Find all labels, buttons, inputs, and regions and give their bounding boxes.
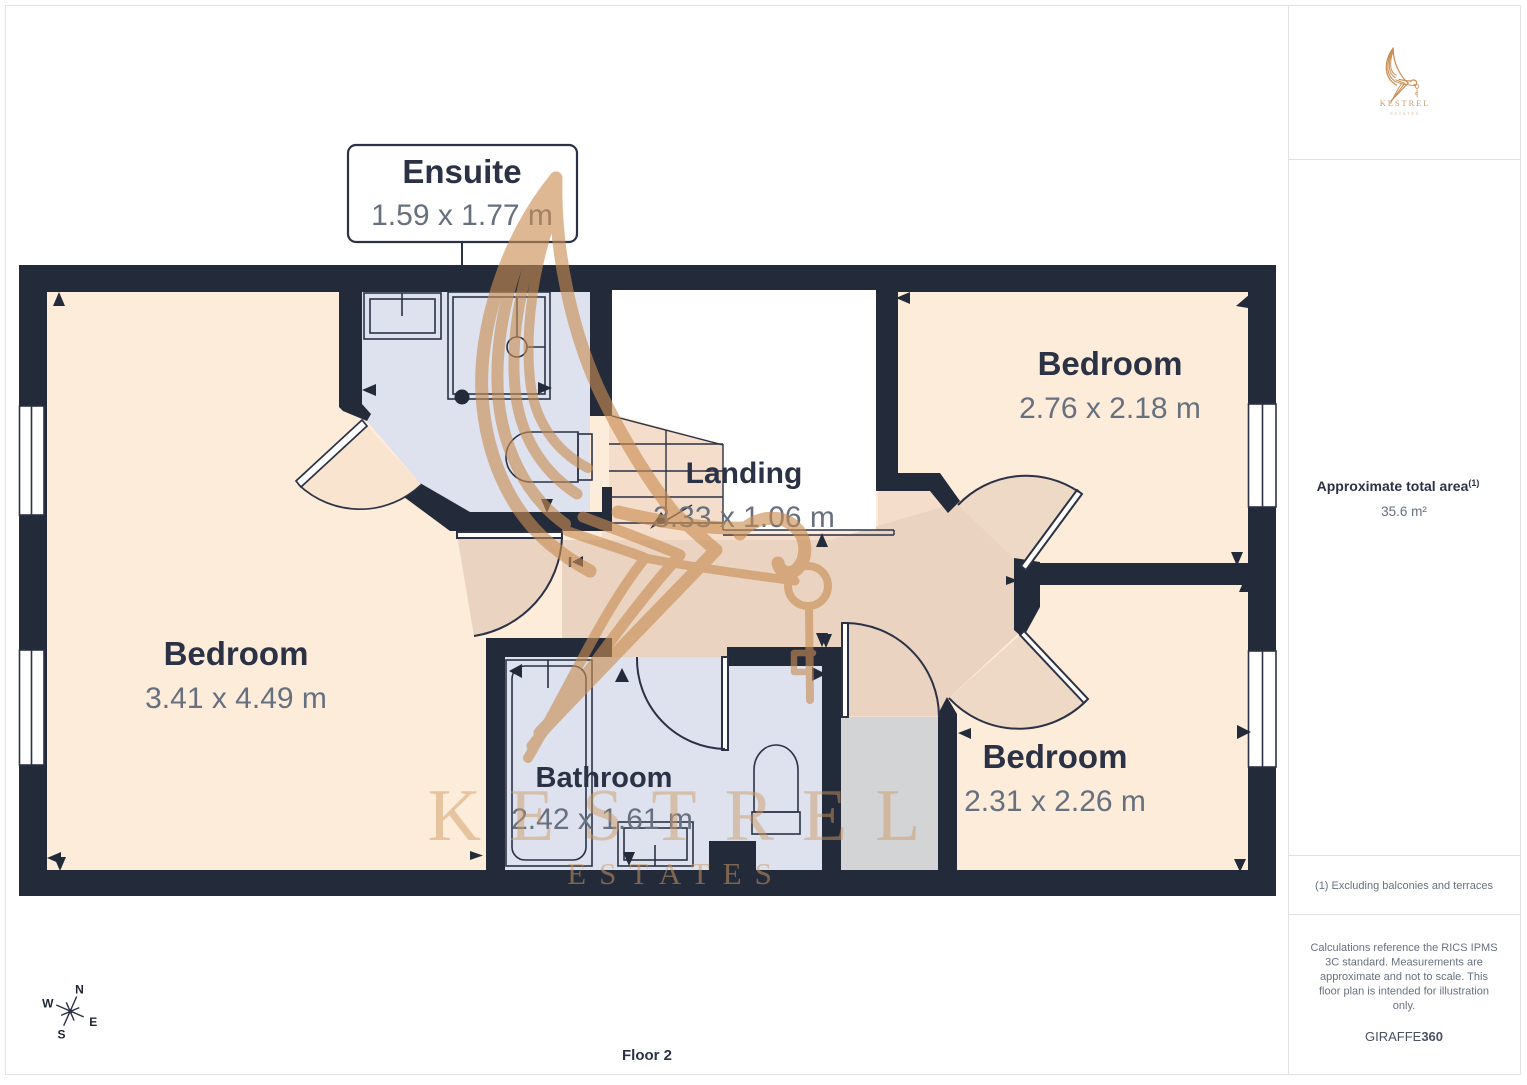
svg-text:Floor 2: Floor 2 [622,1047,672,1064]
svg-text:N: N [75,983,84,997]
svg-text:Ensuite: Ensuite [402,153,521,190]
svg-text:E: E [89,1015,97,1029]
svg-text:KESTREL: KESTREL [428,775,949,857]
svg-text:Calculations reference the RIC: Calculations reference the RICS IPMS [1310,942,1497,954]
svg-text:ESTATES: ESTATES [1390,111,1420,116]
svg-text:3.41 x 4.49 m: 3.41 x 4.49 m [145,682,327,715]
svg-text:approximate and not to scale.: approximate and not to scale. This [1320,971,1488,983]
svg-text:S: S [57,1028,65,1042]
svg-text:3C standard. Measurements are: 3C standard. Measurements are [1325,957,1483,969]
svg-text:(1) Excluding balconies and te: (1) Excluding balconies and terraces [1315,880,1493,892]
svg-text:2.76 x 2.18 m: 2.76 x 2.18 m [1019,392,1201,425]
svg-text:Landing: Landing [686,457,803,490]
svg-text:35.6 m²: 35.6 m² [1381,504,1427,519]
svg-text:Bedroom: Bedroom [164,635,309,672]
svg-text:ESTATES: ESTATES [567,856,785,891]
svg-text:only.: only. [1393,1000,1415,1012]
svg-text:2.31 x 2.26 m: 2.31 x 2.26 m [964,785,1146,818]
svg-text:Bedroom: Bedroom [1038,345,1183,382]
svg-text:floor plan is intended for ill: floor plan is intended for illustration [1319,986,1489,998]
svg-text:Bedroom: Bedroom [983,738,1128,775]
svg-text:W: W [42,997,54,1011]
svg-text:GIRAFFE360: GIRAFFE360 [1365,1029,1443,1044]
svg-text:Approximate total area(1): Approximate total area(1) [1317,478,1480,494]
svg-text:KESTREL: KESTREL [1380,98,1431,108]
